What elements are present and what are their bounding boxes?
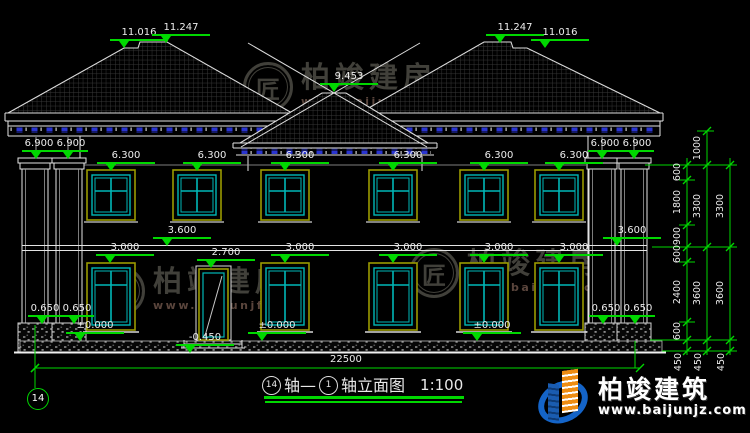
down-triangle-icon: [119, 41, 129, 48]
axis-bubble-14: 14: [27, 388, 49, 410]
level-marker-zero: ±0.000: [248, 320, 306, 341]
brand-logo-icon: [536, 368, 592, 426]
brand-name: 柏竣建筑: [598, 377, 747, 403]
down-triangle-icon: [75, 334, 85, 341]
level-marker-upper-window: 6.300: [470, 150, 528, 171]
down-triangle-icon: [280, 164, 290, 171]
cad-elevation-screen: 匠 柏竣建房 www.baijunjf.com 匠 柏竣建房 www.baiju…: [0, 0, 750, 433]
level-marker-ridge-high-left: 11.247: [152, 22, 210, 43]
vdim-inner: 2400: [672, 275, 684, 309]
vdim-inner: 600: [672, 237, 684, 271]
level-marker-lower-window: 3.000: [545, 242, 603, 263]
title-scale: 1:100: [420, 376, 463, 395]
down-triangle-icon: [630, 317, 640, 324]
down-triangle-icon: [105, 256, 115, 263]
left-roof: [8, 42, 292, 113]
upper-windows: [84, 170, 586, 222]
plinth: [14, 341, 666, 353]
title-axis-bubble-right: 1: [319, 376, 338, 395]
down-triangle-icon: [257, 334, 267, 341]
level-marker-plinth: 0.650: [28, 303, 62, 324]
down-triangle-icon: [63, 152, 73, 159]
level-marker-floor2: 3.600: [603, 225, 661, 246]
down-triangle-icon: [31, 152, 41, 159]
down-triangle-icon: [540, 41, 550, 48]
right-roof: [360, 42, 660, 113]
level-marker-upper-window: 6.300: [271, 150, 329, 171]
drawing-title: 14轴—1轴立面图1:100: [262, 376, 463, 395]
level-marker-plinth: 0.650: [589, 303, 623, 324]
down-triangle-icon: [495, 36, 505, 43]
vdim-middle: 3600: [692, 276, 704, 310]
level-marker-lower-window: 3.000: [470, 242, 528, 263]
down-triangle-icon: [554, 164, 564, 171]
vdim-outer: 3300: [715, 189, 727, 223]
down-triangle-icon: [388, 256, 398, 263]
level-marker-floor2: 3.600: [153, 225, 211, 246]
title-underline-thin: [265, 401, 462, 403]
vdim-inner: 600: [672, 314, 684, 348]
title-underline-thick: [264, 396, 464, 399]
vdim-middle: 3300: [692, 189, 704, 223]
down-triangle-icon: [612, 239, 622, 246]
brand-url: www.baijunjz.com: [598, 403, 747, 418]
level-marker-lower-window: 3.000: [379, 242, 437, 263]
level-marker-upper-window: 6.300: [545, 150, 603, 171]
level-marker-upper-window: 6.300: [97, 150, 155, 171]
level-marker-zero: ±0.000: [463, 320, 521, 341]
down-triangle-icon: [329, 85, 339, 92]
vdim-inner: 1800: [672, 185, 684, 219]
vdim-outer: 3600: [715, 276, 727, 310]
level-marker-eave: 6.900: [22, 138, 56, 159]
total-width-dim: 22500: [330, 354, 362, 365]
level-marker-eave: 6.900: [54, 138, 88, 159]
down-triangle-icon: [106, 164, 116, 171]
down-triangle-icon: [185, 346, 195, 353]
down-triangle-icon: [629, 152, 639, 159]
level-marker-plinth: 0.650: [60, 303, 94, 324]
brand-logo: 柏竣建筑 www.baijunjz.com: [536, 368, 747, 426]
down-triangle-icon: [479, 164, 489, 171]
down-triangle-icon: [598, 317, 608, 324]
down-triangle-icon: [162, 239, 172, 246]
down-triangle-icon: [472, 334, 482, 341]
title-axis-bubble-left: 14: [262, 376, 281, 395]
level-marker-lower-window: 3.000: [96, 242, 154, 263]
title-axis-word: 轴—: [284, 376, 316, 395]
down-triangle-icon: [37, 317, 47, 324]
level-marker-porch-ridge: 9.453: [320, 71, 378, 92]
vdim-middle: 1000: [692, 131, 704, 165]
vdim-inner: 600: [672, 155, 684, 189]
level-marker-ridge-low-right: 11.016: [531, 27, 589, 48]
level-marker-upper-window: 6.300: [379, 150, 437, 171]
down-triangle-icon: [554, 256, 564, 263]
level-marker-upper-window: 6.300: [183, 150, 241, 171]
down-triangle-icon: [388, 164, 398, 171]
level-marker-eave: 6.900: [620, 138, 654, 159]
down-triangle-icon: [69, 317, 79, 324]
down-triangle-icon: [280, 256, 290, 263]
down-triangle-icon: [192, 164, 202, 171]
down-triangle-icon: [206, 261, 216, 268]
title-name: 轴立面图: [341, 376, 405, 395]
level-marker-lower-window: 3.000: [271, 242, 329, 263]
level-marker-grade: -0.450: [176, 332, 234, 353]
level-marker-plinth: 0.650: [621, 303, 655, 324]
logo-blue-tower: [548, 383, 559, 421]
logo-orange-tower: [562, 369, 578, 413]
down-triangle-icon: [161, 36, 171, 43]
level-marker-door-top: 2.700: [197, 247, 255, 268]
down-triangle-icon: [479, 256, 489, 263]
